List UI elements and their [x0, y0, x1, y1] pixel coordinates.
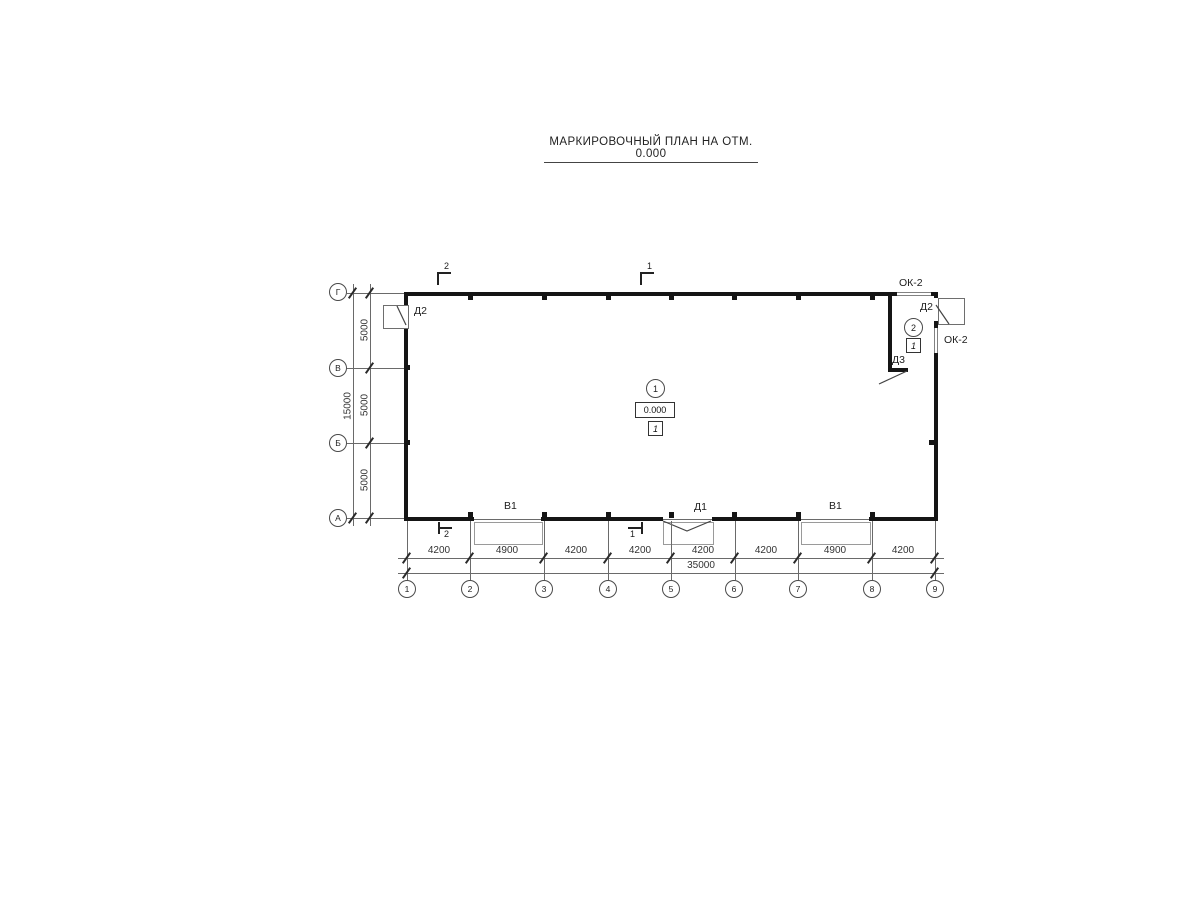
grid-extension-line [798, 521, 799, 580]
grid-bubble-v: В [329, 359, 347, 377]
grid-bubble-6: 6 [725, 580, 743, 598]
grid-bubble-2: 2 [461, 580, 479, 598]
label-door-d1: Д1 [694, 501, 707, 513]
room2-number-bubble: 2 [904, 318, 923, 337]
door-leaf-d3-icon [879, 371, 907, 384]
grid-bubble-b: Б [329, 434, 347, 452]
grid-extension-line [347, 518, 404, 519]
grid-bubble-label: 6 [732, 584, 737, 594]
grid-extension-line [544, 521, 545, 580]
grid-bubble-label: В [335, 363, 341, 373]
section-mark-top-left-line [437, 272, 451, 274]
label-door-d2-left: Д2 [414, 305, 427, 317]
wall-top [404, 292, 897, 296]
wall-internal-horizontal [888, 368, 908, 372]
grid-bubble-9: 9 [926, 580, 944, 598]
column [404, 365, 410, 370]
grid-extension-line [671, 521, 672, 580]
room1-elevation: 0.000 [644, 405, 667, 415]
grid-bubble-label: 2 [468, 584, 473, 594]
window-ok2-top [897, 292, 931, 296]
dimension-label: 4200 [428, 545, 450, 556]
dimension-line-bottom-total [398, 573, 944, 574]
label-gate-v1-right: В1 [829, 500, 842, 512]
grid-extension-line [735, 521, 736, 580]
section-mark-top-left-label: 2 [444, 261, 449, 271]
wall-right-seg3 [934, 353, 938, 521]
column [468, 294, 473, 300]
room1-number: 1 [653, 384, 658, 394]
dimension-label: 4900 [824, 545, 846, 556]
grid-bubble-a: А [329, 509, 347, 527]
section-mark-bottom-left-label: 2 [444, 529, 449, 539]
column [732, 294, 737, 300]
grid-bubble-7: 7 [789, 580, 807, 598]
dimension-label: 4200 [629, 545, 651, 556]
page-title: МАРКИРОВОЧНЫЙ ПЛАН НА ОТМ. 0.000 [544, 136, 758, 163]
grid-bubble-4: 4 [599, 580, 617, 598]
column [404, 440, 410, 445]
label-door-d2-right: Д2 [920, 301, 933, 313]
grid-extension-line [347, 368, 404, 369]
door-threshold-d1 [663, 519, 712, 520]
grid-bubble-1: 1 [398, 580, 416, 598]
section-mark-bottom-right-label: 1 [630, 529, 635, 539]
dimension-label: 5000 [360, 319, 371, 341]
room1-number-bubble: 1 [646, 379, 665, 398]
column [929, 440, 936, 445]
grid-bubble-g: Г [329, 283, 347, 301]
column [468, 512, 473, 518]
label-window-ok2-right: ОК-2 [944, 334, 968, 346]
dimension-label: 4200 [755, 545, 777, 556]
section-mark-top-right-line [640, 272, 654, 274]
grid-extension-line [470, 521, 471, 580]
column [732, 512, 737, 518]
wall-bottom-seg2 [541, 517, 663, 521]
dimension-label: 5000 [360, 469, 371, 491]
door-landing-d2-left [383, 305, 409, 329]
dimension-label: 4200 [892, 545, 914, 556]
room1-floor-type: 1 [653, 424, 658, 434]
grid-bubble-label: А [335, 513, 341, 523]
gate-threshold-right [801, 519, 869, 520]
wall-bottom-seg1 [404, 517, 474, 521]
grid-extension-line [347, 443, 404, 444]
wall-bottom-seg3 [712, 517, 801, 521]
window-ok2-right [934, 328, 938, 353]
label-window-ok2-top: ОК-2 [899, 277, 923, 289]
grid-extension-line [347, 293, 404, 294]
wall-left-seg2 [404, 326, 408, 521]
section-mark-top-right-label: 1 [647, 261, 652, 271]
grid-bubble-3: 3 [535, 580, 553, 598]
column [669, 294, 674, 300]
column [796, 512, 801, 518]
room1-floor-type-box: 1 [648, 421, 663, 436]
gate-threshold-left [474, 519, 541, 520]
door-landing-d2-right [938, 298, 965, 325]
grid-bubble-label: Г [336, 287, 341, 297]
grid-bubble-label: 8 [870, 584, 875, 594]
gate-recess-left [474, 522, 543, 545]
wall-bottom-seg4 [869, 517, 938, 521]
label-door-d3: Д3 [892, 354, 905, 366]
floor-plan-drawing: МАРКИРОВОЧНЫЙ ПЛАН НА ОТМ. 0.000 [0, 0, 1200, 900]
column [870, 294, 875, 300]
grid-bubble-8: 8 [863, 580, 881, 598]
grid-bubble-label: 4 [606, 584, 611, 594]
dimension-total-label: 35000 [687, 560, 715, 571]
grid-bubble-label: 1 [405, 584, 410, 594]
gate-recess-right [801, 522, 871, 545]
column [542, 294, 547, 300]
grid-extension-line [608, 521, 609, 580]
door-leaves-overlay [0, 0, 1200, 900]
grid-bubble-label: 7 [796, 584, 801, 594]
dimension-label: 4200 [692, 545, 714, 556]
column [606, 294, 611, 300]
dimension-total-label: 15000 [343, 392, 354, 420]
dimension-label: 5000 [360, 394, 371, 416]
grid-bubble-label: 3 [542, 584, 547, 594]
label-gate-v1-left: В1 [504, 500, 517, 512]
room1-elevation-box: 0.000 [635, 402, 675, 418]
column [669, 512, 674, 518]
grid-bubble-label: 5 [669, 584, 674, 594]
dimension-label: 4200 [565, 545, 587, 556]
dimension-label: 4900 [496, 545, 518, 556]
grid-bubble-label: 9 [933, 584, 938, 594]
room2-number: 2 [911, 323, 916, 333]
grid-bubble-label: Б [335, 438, 341, 448]
grid-extension-line [872, 521, 873, 580]
grid-bubble-5: 5 [662, 580, 680, 598]
room2-floor-type-box: 1 [906, 338, 921, 353]
wall-left-seg1 [404, 292, 408, 306]
column [606, 512, 611, 518]
column [870, 512, 875, 518]
room2-floor-type: 1 [911, 341, 916, 351]
column [796, 294, 801, 300]
column [542, 512, 547, 518]
